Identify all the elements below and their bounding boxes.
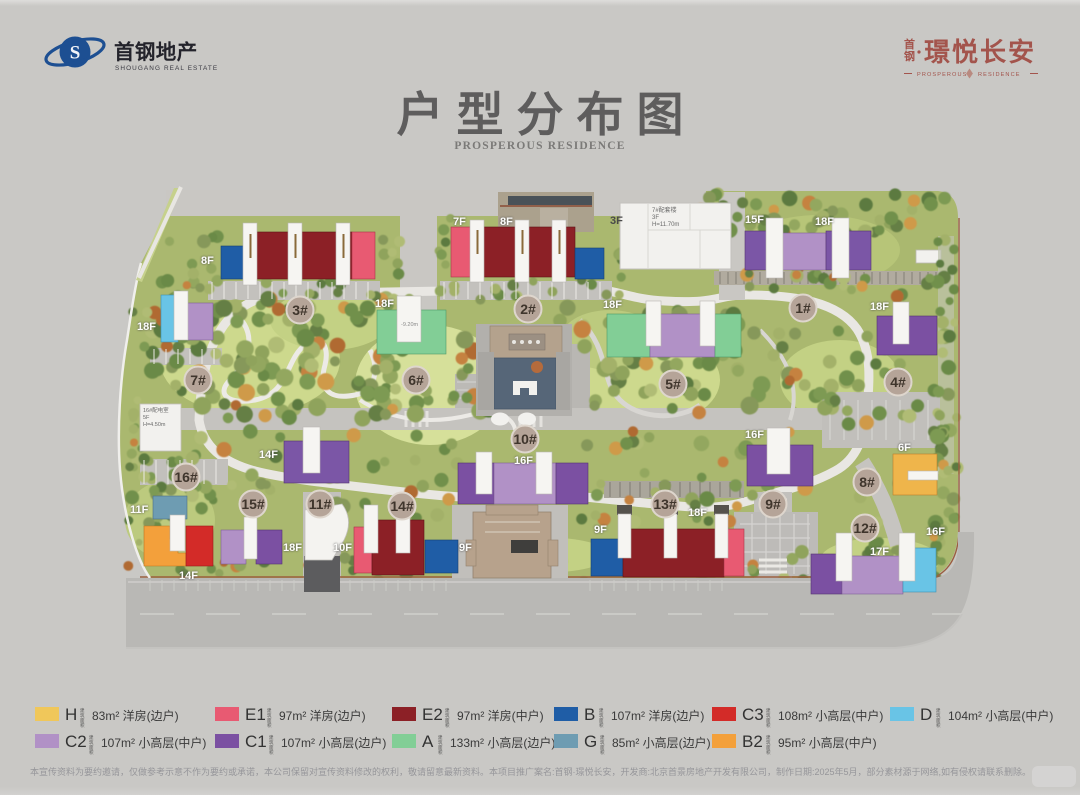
- svg-text:16F: 16F: [745, 429, 764, 441]
- svg-text:9F: 9F: [594, 524, 607, 536]
- svg-text:18F: 18F: [375, 298, 394, 310]
- svg-text:13#: 13#: [653, 496, 677, 512]
- svg-text:15F: 15F: [745, 214, 764, 226]
- svg-text:H=11.70m: H=11.70m: [652, 222, 679, 228]
- svg-text:10#: 10#: [513, 431, 537, 447]
- svg-text:7#: 7#: [190, 372, 206, 388]
- svg-text:16#配电室: 16#配电室: [143, 406, 169, 414]
- svg-text:18F: 18F: [815, 216, 834, 228]
- svg-text:11F: 11F: [130, 504, 149, 516]
- svg-text:8F: 8F: [500, 216, 513, 228]
- svg-text:18F: 18F: [603, 299, 622, 311]
- svg-text:8#: 8#: [859, 474, 875, 490]
- svg-text:9F: 9F: [459, 542, 472, 554]
- svg-text:17F: 17F: [870, 546, 889, 558]
- svg-text:3F: 3F: [610, 215, 623, 227]
- svg-text:5#: 5#: [665, 376, 681, 392]
- svg-text:3#: 3#: [292, 302, 308, 318]
- svg-text:3F: 3F: [652, 215, 659, 221]
- svg-text:-9.20m: -9.20m: [401, 322, 419, 328]
- svg-text:16#: 16#: [174, 469, 198, 485]
- svg-text:10F: 10F: [333, 542, 352, 554]
- svg-text:15#: 15#: [241, 496, 265, 512]
- svg-text:14F: 14F: [179, 570, 198, 582]
- svg-text:H=4.50m: H=4.50m: [143, 422, 166, 428]
- svg-text:16F: 16F: [514, 455, 533, 467]
- svg-text:7F: 7F: [453, 216, 466, 228]
- svg-text:4#: 4#: [890, 374, 906, 390]
- svg-text:18F: 18F: [688, 507, 707, 519]
- svg-text:6#: 6#: [408, 372, 424, 388]
- svg-text:14#: 14#: [390, 498, 414, 514]
- svg-text:8F: 8F: [201, 255, 214, 267]
- svg-text:1#: 1#: [795, 300, 811, 316]
- svg-text:18F: 18F: [137, 321, 156, 333]
- svg-text:5F: 5F: [143, 415, 150, 421]
- svg-text:2#: 2#: [520, 301, 536, 317]
- svg-text:18F: 18F: [870, 301, 889, 313]
- svg-text:18F: 18F: [283, 542, 302, 554]
- svg-text:16F: 16F: [926, 526, 945, 538]
- svg-text:6F: 6F: [898, 442, 911, 454]
- svg-text:12#: 12#: [853, 520, 877, 536]
- svg-text:11#: 11#: [309, 496, 332, 512]
- svg-text:14F: 14F: [259, 449, 278, 461]
- svg-text:9#: 9#: [765, 496, 781, 512]
- svg-text:7#配套楼: 7#配套楼: [652, 206, 677, 214]
